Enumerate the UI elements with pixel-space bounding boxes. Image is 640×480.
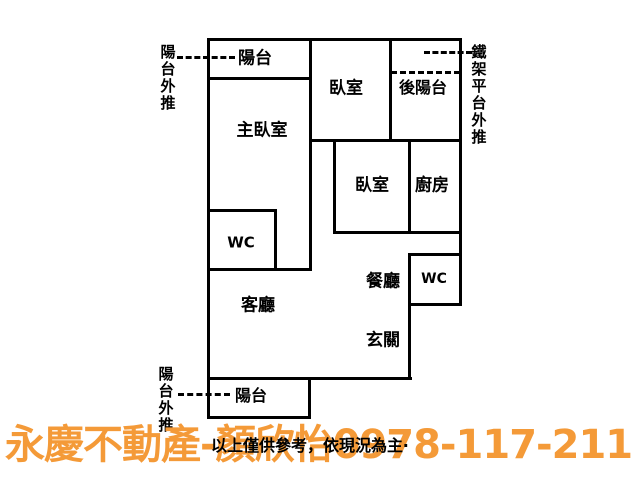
dashed-extension-line	[424, 51, 472, 54]
wall-segment	[309, 139, 462, 142]
wall-segment	[408, 139, 411, 234]
wall-segment	[459, 38, 462, 306]
wall-segment	[207, 38, 210, 419]
wall-segment	[333, 139, 336, 234]
annotation-iron-platform-pushout: 鐵架平台外推	[470, 44, 487, 146]
room-label-balcony-top: 陽台	[238, 51, 272, 68]
dashed-extension-line	[391, 71, 460, 74]
room-label-living-room: 客廳	[241, 298, 275, 315]
wall-segment	[409, 253, 462, 256]
room-label-bedroom-2: 臥室	[355, 178, 389, 195]
room-label-master-bedroom: 主臥室	[237, 123, 288, 140]
wall-segment	[333, 231, 462, 234]
wall-segment	[409, 303, 462, 306]
room-label-bedroom-1: 臥室	[329, 81, 363, 98]
wall-segment	[207, 268, 312, 271]
dashed-extension-line	[177, 56, 235, 59]
wall-segment	[207, 416, 311, 419]
wall-segment	[207, 77, 312, 80]
floor-plan-image: 陽台主臥室臥室後陽台臥室廚房WC客廳餐廳WC玄關陽台 陽台外推鐵架平台外推陽台外…	[0, 0, 640, 480]
wall-segment	[389, 38, 392, 142]
room-label-balcony-bottom: 陽台	[235, 388, 267, 404]
room-label-kitchen: 廚房	[415, 178, 449, 195]
wall-segment	[207, 38, 462, 41]
wall-segment	[274, 209, 277, 271]
wall-segment	[309, 38, 312, 271]
room-label-dining-room: 餐廳	[366, 274, 400, 291]
wall-segment	[308, 377, 311, 419]
room-label-rear-balcony: 後陽台	[399, 80, 447, 96]
room-label-wc-left: WC	[227, 236, 255, 251]
annotation-balcony-pushout-top: 陽台外推	[159, 44, 176, 112]
room-label-wc-right: WC	[421, 272, 447, 286]
wall-segment	[207, 209, 277, 212]
room-label-foyer: 玄關	[366, 333, 400, 350]
disclaimer-text: 以上僅供參考，依現況為主‧	[211, 432, 409, 456]
wall-segment	[408, 253, 411, 380]
dashed-extension-line	[178, 393, 230, 396]
